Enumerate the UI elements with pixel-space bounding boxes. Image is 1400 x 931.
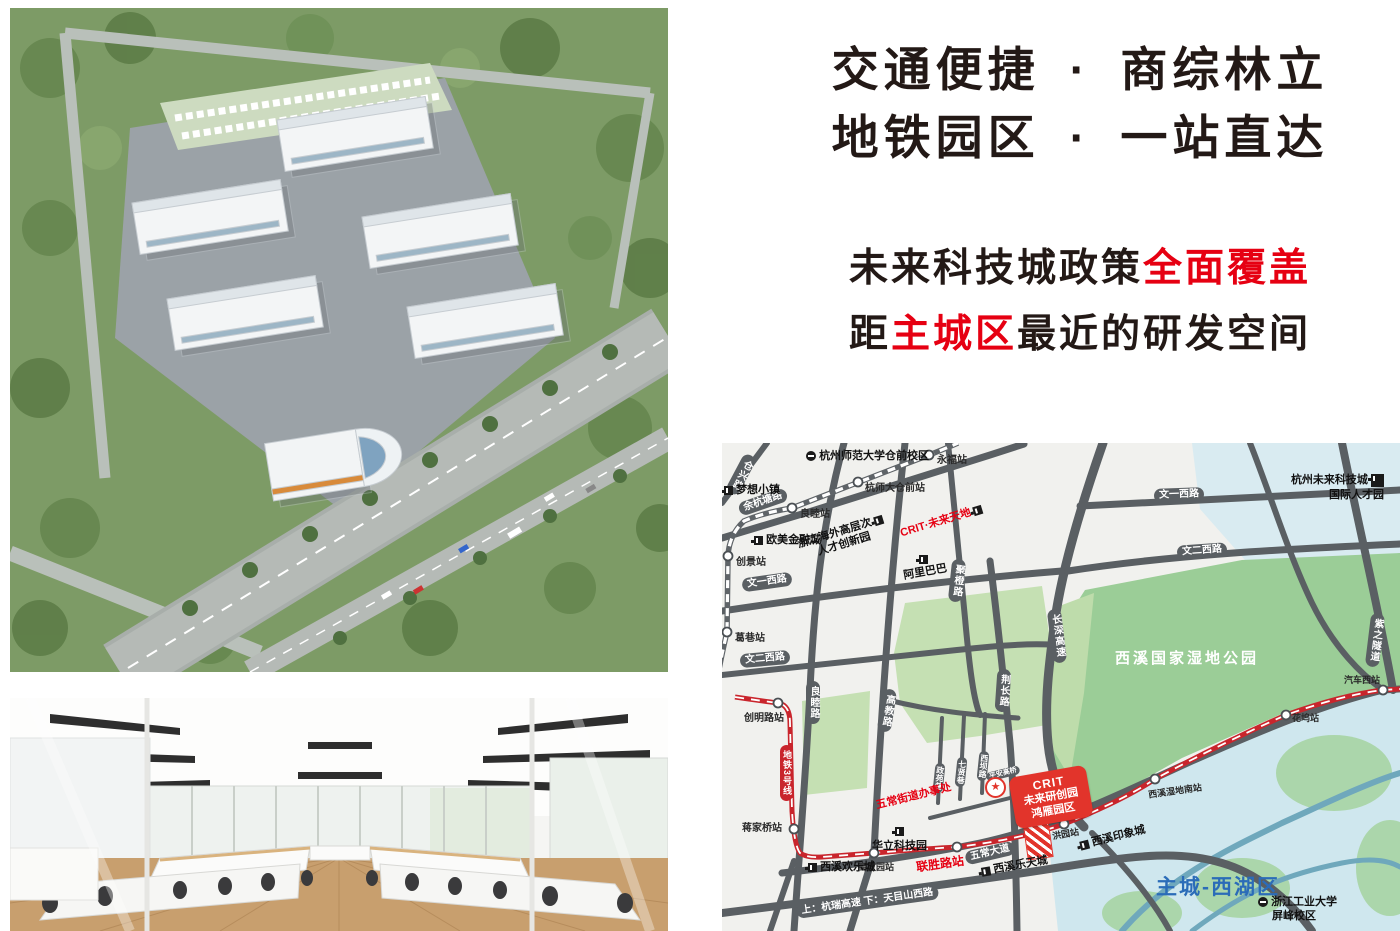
subheadline-line-1: 未来科技城政策全面覆盖 bbox=[752, 236, 1400, 302]
building-icon bbox=[1371, 474, 1384, 487]
district-label: 主城-西湖区 bbox=[1156, 871, 1280, 901]
station-liangmu: 良睦站 bbox=[800, 505, 830, 520]
headline-line-1: 交通便捷·商综林立 bbox=[752, 36, 1400, 104]
green-mid bbox=[894, 586, 1052, 743]
station-jiangjiaqiao: 蒋家桥站 bbox=[742, 819, 782, 834]
station-huawu: 花坞站 bbox=[1292, 711, 1319, 724]
building-icon bbox=[895, 827, 904, 836]
school-icon bbox=[806, 451, 816, 461]
body1-prefix: 未来科技城政策 bbox=[849, 247, 1143, 290]
headline-1-left: 交通便捷 bbox=[832, 43, 1040, 96]
station-chuangjing: 创景站 bbox=[736, 553, 766, 568]
headline-2-right: 一站直达 bbox=[1120, 111, 1328, 164]
station-yongfu: 永福站 bbox=[937, 451, 967, 466]
headline-2-left: 地铁园区 bbox=[832, 111, 1040, 164]
side-cabinet bbox=[10, 848, 98, 900]
poi-xixi-joy-city: 西溪欢乐城 bbox=[808, 858, 875, 874]
poi-international-talent-park: 杭州未来科技城 国际人才园 bbox=[1291, 473, 1384, 503]
station-qichexi: 汽车西站 bbox=[1344, 673, 1380, 686]
headline-1-right: 商综林立 bbox=[1120, 43, 1328, 96]
headline-line-2: 地铁园区·一站直达 bbox=[752, 104, 1400, 172]
separator-dot: · bbox=[1070, 104, 1091, 172]
government-star-icon: ★ bbox=[985, 777, 1006, 798]
road-label-liangmu: 良睦路 bbox=[806, 681, 820, 724]
station-chuangming: 创明路站 bbox=[744, 709, 784, 724]
station-hangshida-cangqian: 杭师大仓前站 bbox=[865, 479, 925, 494]
office-photo-image bbox=[10, 698, 668, 931]
separator-dot: · bbox=[1070, 36, 1091, 104]
wetland-park-label: 西溪国家湿地公园 bbox=[1115, 647, 1259, 668]
body2-highlight: 主城区 bbox=[891, 313, 1017, 356]
road-label-jingchang: 荆长路 bbox=[995, 669, 1012, 713]
body1-highlight: 全面覆盖 bbox=[1143, 247, 1311, 290]
building-icon bbox=[724, 486, 733, 495]
road-label-wenyi-east: 文一西路 bbox=[1154, 487, 1204, 503]
subheadline-block: 未来科技城政策全面覆盖 距主城区最近的研发空间 bbox=[752, 236, 1400, 368]
station-gexiang: 葛巷站 bbox=[735, 629, 765, 644]
headline-block: 交通便捷·商综林立 地铁园区·一站直达 未来科技城政策全面覆盖 距主城区最近的研… bbox=[752, 36, 1400, 368]
building-icon bbox=[754, 536, 763, 545]
poi-hangzhou-normal-university: 杭州师范大学仓前校区 bbox=[806, 447, 929, 463]
building-icon bbox=[808, 863, 817, 872]
body2-suffix: 最近的研发空间 bbox=[1017, 313, 1311, 356]
location-map: 仓兴路 余杭塘路 文一西路 文二西路 文一西路 文二西路 良睦路 高教路 聚橙路… bbox=[722, 443, 1400, 931]
subheadline-line-2: 距主城区最近的研发空间 bbox=[752, 302, 1400, 368]
building-icon bbox=[981, 866, 991, 876]
metro-line3-label: 地铁3号线 bbox=[780, 745, 793, 801]
body2-prefix: 距 bbox=[849, 313, 891, 356]
aerial-park-render bbox=[10, 8, 668, 672]
poi-huali-tech-park: 华立科技园 bbox=[872, 825, 927, 853]
aerial-render-image bbox=[10, 8, 668, 672]
property-flyer: { "headline": { "line1_left": "交通便捷", "l… bbox=[0, 0, 1400, 931]
building-icon bbox=[1079, 839, 1090, 850]
poi-dream-town: 梦想小镇 bbox=[724, 481, 780, 497]
office-interior-photo bbox=[10, 698, 668, 931]
